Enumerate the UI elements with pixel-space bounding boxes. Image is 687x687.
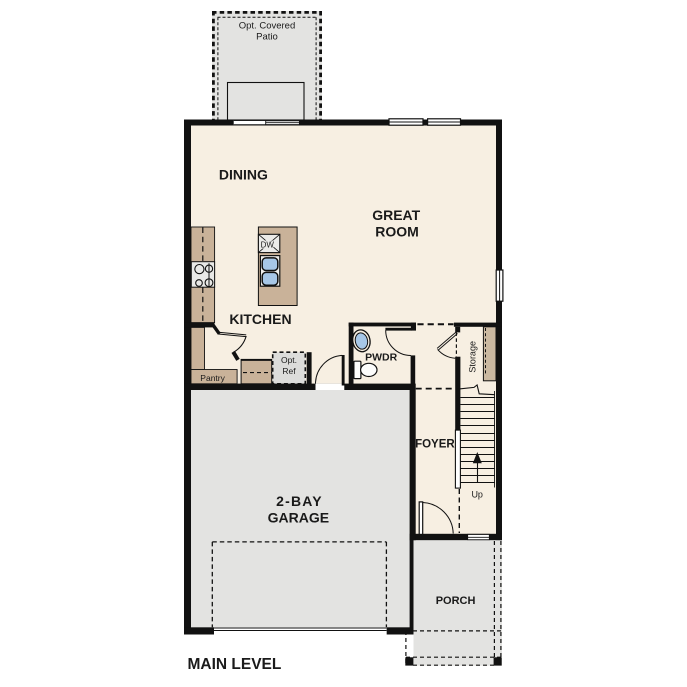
svg-text:DW: DW (261, 240, 275, 249)
svg-text:FOYER: FOYER (415, 438, 455, 450)
svg-text:Up: Up (471, 489, 483, 499)
svg-text:KITCHEN: KITCHEN (229, 311, 291, 327)
svg-text:Ref: Ref (282, 366, 296, 376)
svg-text:ROOM: ROOM (375, 224, 419, 240)
svg-text:DINING: DINING (219, 167, 268, 183)
svg-text:Pantry: Pantry (200, 373, 225, 383)
svg-text:2-BAY: 2-BAY (276, 493, 323, 509)
svg-text:GREAT: GREAT (372, 207, 420, 223)
svg-text:PORCH: PORCH (436, 595, 476, 607)
svg-text:MAIN LEVEL: MAIN LEVEL (188, 656, 282, 673)
svg-text:PWDR: PWDR (365, 352, 397, 364)
svg-text:Patio: Patio (256, 32, 278, 43)
svg-text:Opt. Covered: Opt. Covered (239, 21, 296, 32)
svg-text:GARAGE: GARAGE (268, 510, 329, 526)
svg-text:Storage: Storage (467, 341, 477, 373)
svg-text:Opt.: Opt. (281, 355, 297, 365)
